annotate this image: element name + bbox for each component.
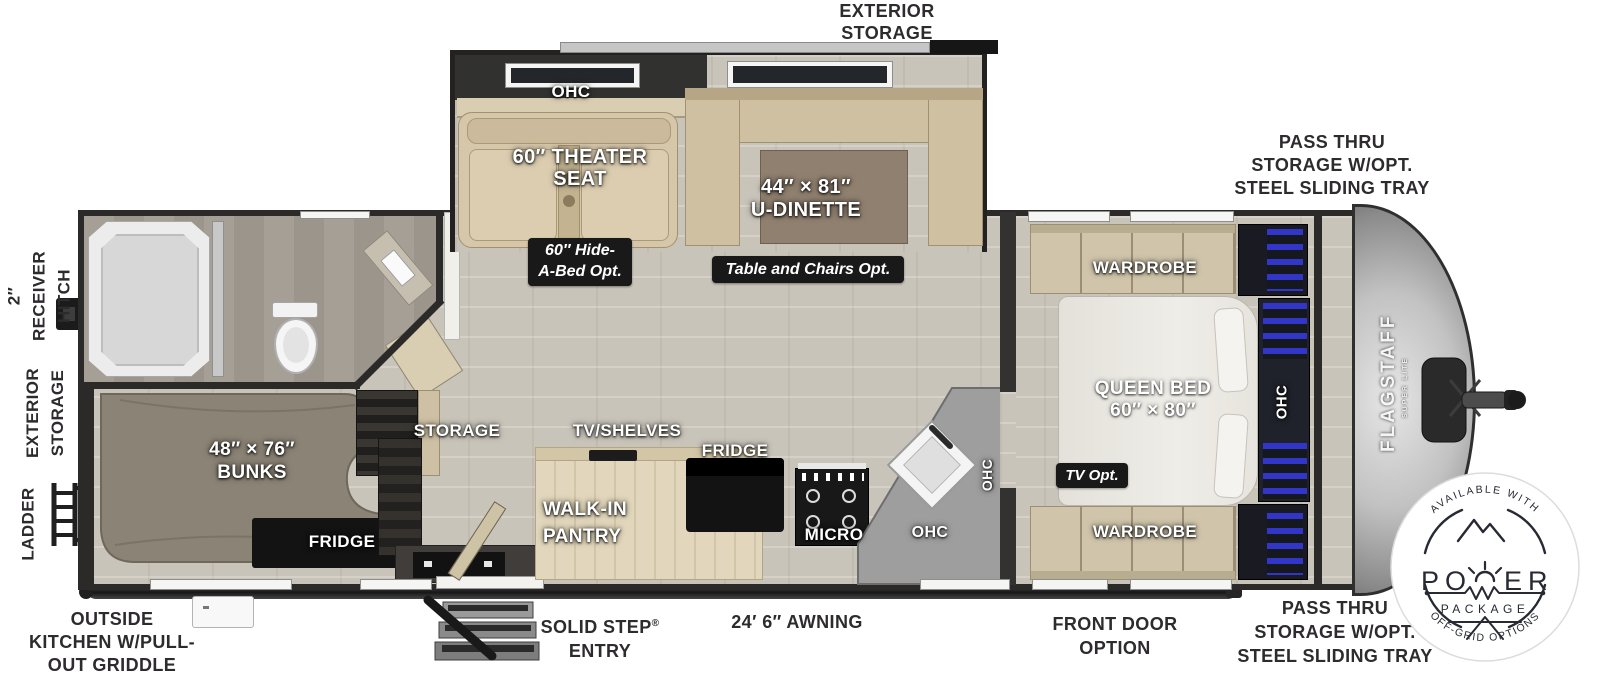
dinette-bench-right bbox=[928, 88, 983, 246]
pillow-top bbox=[1213, 307, 1249, 393]
power-package-badge: AVAILABLE WITH PO ER PACKAGE OFF-GRID OP… bbox=[1390, 472, 1580, 662]
hitch-assembly bbox=[1420, 350, 1530, 450]
label-wardrobe-top: WARDROBE bbox=[1093, 258, 1197, 278]
slideout-window-right-glass bbox=[733, 66, 887, 83]
pillow-bottom bbox=[1213, 413, 1249, 499]
label-micro: MICRO bbox=[805, 525, 864, 545]
window-bed-top-1 bbox=[1028, 211, 1110, 222]
dinette-bench-left bbox=[685, 88, 740, 246]
label-kitchen-fridge: FRIDGE bbox=[702, 441, 769, 461]
annotation-exterior-storage-top: EXTERIOR STORAGE bbox=[839, 0, 934, 44]
label-wardrobe-bottom: WARDROBE bbox=[1093, 522, 1197, 542]
label-ohc-bedroom: OHC bbox=[1274, 385, 1291, 420]
window-bunk-2 bbox=[360, 579, 432, 590]
annotation-solid-step: SOLID STEP® ENTRY bbox=[541, 612, 660, 663]
griddle-latch bbox=[203, 606, 209, 609]
wardrobe-bottom-cabinet bbox=[1030, 506, 1236, 580]
annotation-front-door: FRONT DOOR OPTION bbox=[1053, 612, 1178, 660]
label-theater-seat: 60″ THEATER SEAT bbox=[513, 146, 648, 190]
badge-power-right: ER bbox=[1504, 566, 1554, 596]
annotation-outside-kitchen: OUTSIDE KITCHEN W/PULL- OUT GRIDDLE bbox=[29, 608, 195, 677]
slideout-storage-hatch-dark bbox=[930, 40, 998, 54]
label-queen-bed: QUEEN BED 60″ × 80″ bbox=[1095, 378, 1212, 422]
ohc-blue-bottom bbox=[1263, 443, 1307, 499]
label-tv-shelves: TV/SHELVES bbox=[573, 421, 682, 441]
u-dinette bbox=[685, 88, 985, 248]
front-wall bbox=[1314, 212, 1322, 588]
label-storage: STORAGE bbox=[414, 421, 501, 441]
badge-power-left: PO bbox=[1421, 566, 1472, 596]
badge-tv-opt: TV Opt. bbox=[1056, 463, 1128, 488]
label-ohc-lower: OHC bbox=[912, 524, 949, 542]
brand-sub: SUPER LITE bbox=[1402, 352, 1412, 422]
bathroom-angled-wall bbox=[0, 0, 500, 420]
bedroom-shelf-top bbox=[1238, 224, 1308, 296]
badge-package-text: PACKAGE bbox=[1441, 602, 1530, 616]
wardrobe-bottom-edge bbox=[1031, 571, 1235, 579]
brand-name: FLAGSTAFF bbox=[1378, 314, 1402, 452]
entry-steps bbox=[418, 594, 543, 669]
floorplan-canvas: FLAGSTAFF SUPER LITE OHC 60″ THEATER SEA… bbox=[0, 0, 1600, 679]
label-pantry: WALK-IN PANTRY bbox=[543, 496, 627, 550]
cupholder-2 bbox=[563, 195, 575, 207]
annotation-receiver-hitch: 2″ RECEIVER HITCH bbox=[2, 251, 77, 341]
label-u-dinette: 44″ × 81″ U-DINETTE bbox=[751, 176, 861, 222]
label-bunks: 48″ × 76″ BUNKS bbox=[209, 438, 295, 484]
window-kitchen bbox=[920, 579, 1010, 590]
annotation-awning: 24′ 6″ AWNING bbox=[731, 611, 863, 633]
bedroom-shelf-bottom bbox=[1238, 504, 1308, 580]
label-ohc-living: OHC bbox=[552, 82, 591, 102]
label-ohc-side: OHC bbox=[979, 459, 995, 491]
outside-kitchen-griddle bbox=[192, 596, 254, 628]
annotation-ladder: LADDER bbox=[16, 487, 41, 560]
window-bed-bottom-2 bbox=[1130, 579, 1232, 590]
slideout-window-right bbox=[727, 61, 893, 88]
window-bunk-1 bbox=[150, 579, 292, 590]
shelf-blue-bins-top bbox=[1267, 229, 1303, 291]
window-bed-top-2 bbox=[1130, 211, 1234, 222]
annotation-pass-thru-top: PASS THRU STORAGE W/OPT. STEEL SLIDING T… bbox=[1234, 131, 1429, 200]
slideout-window-left-glass bbox=[511, 68, 634, 83]
window-bed-bottom-1 bbox=[1032, 579, 1108, 590]
annotation-exterior-storage-left: EXTERIOR STORAGE bbox=[20, 368, 70, 458]
shelf-blue-bins-bottom bbox=[1267, 513, 1303, 575]
badge-hide-a-bed: 60″ Hide- A-Bed Opt. bbox=[528, 238, 632, 286]
label-bunk-fridge: FRIDGE bbox=[309, 532, 376, 552]
bedroom-door-opening bbox=[1000, 392, 1016, 488]
ohc-blue-top bbox=[1263, 303, 1307, 359]
dinette-backrest bbox=[685, 88, 983, 100]
wardrobe-top-edge bbox=[1031, 225, 1235, 233]
badge-table-chairs: Table and Chairs Opt. bbox=[712, 256, 904, 283]
